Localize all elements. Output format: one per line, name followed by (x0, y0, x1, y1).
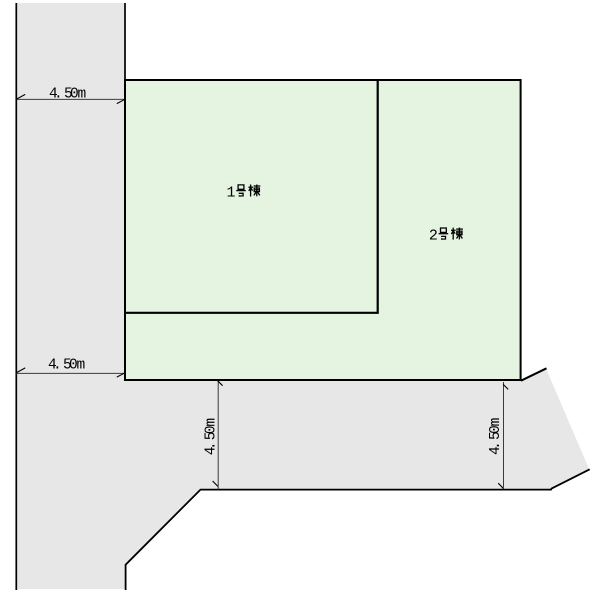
svg-text:4.50m: 4.50m (48, 358, 85, 374)
svg-text:2: 2 (429, 227, 438, 244)
svg-text:4.50m: 4.50m (49, 86, 86, 102)
svg-text:4.50m: 4.50m (488, 418, 504, 455)
svg-text:1: 1 (226, 184, 235, 201)
svg-text:4.50m: 4.50m (204, 418, 220, 455)
